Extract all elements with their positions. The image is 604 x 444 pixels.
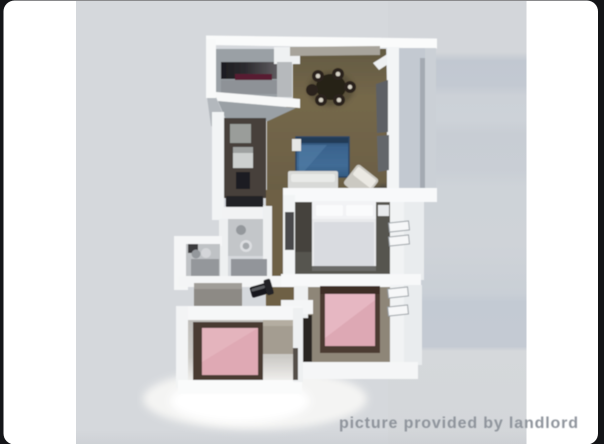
svg-text:picture provided by landlord: picture provided by landlord [339,415,579,432]
